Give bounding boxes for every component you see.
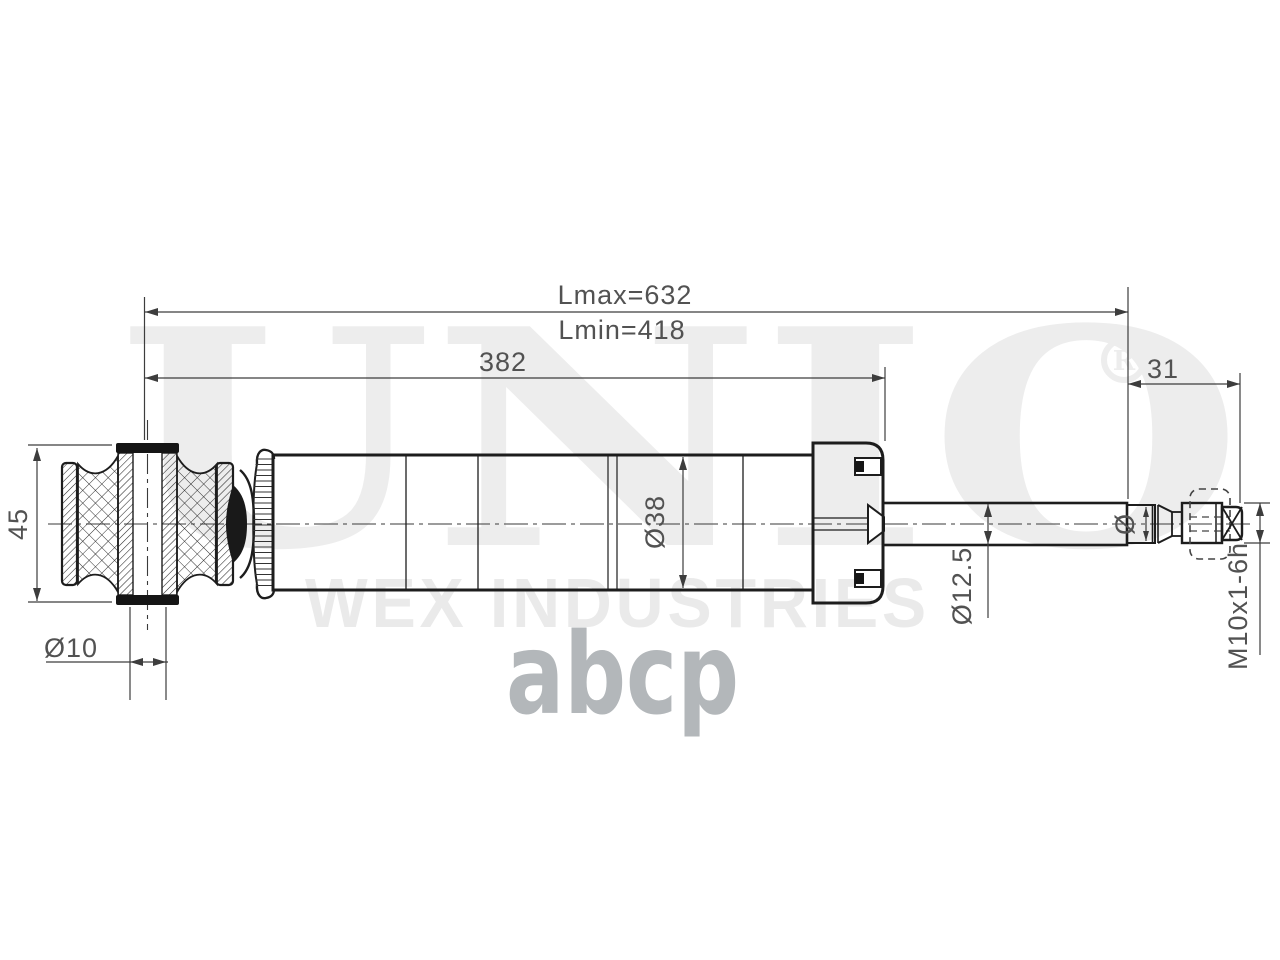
- registered-letter: R: [1113, 346, 1136, 377]
- dim-label-d38: Ø38: [640, 495, 670, 549]
- dim-label-stem-diameter: Ø: [1110, 513, 1140, 535]
- shock-absorber-drawing: UNIO R WEX INDUSTRIES abcp: [0, 0, 1280, 960]
- dim-label-lmin: Lmin=418: [558, 315, 685, 345]
- dim-label-d125: Ø12.5: [947, 547, 977, 626]
- bushing-sleeve-top-flange: [116, 443, 179, 453]
- bushing-rubber-left: [78, 456, 118, 592]
- bushing-outer-ring-left: [62, 463, 77, 585]
- technical-drawing-canvas: UNIO R WEX INDUSTRIES abcp: [0, 0, 1280, 960]
- dim-label-45: 45: [3, 508, 33, 540]
- dim-label-31: 31: [1147, 354, 1179, 384]
- bushing-sleeve-wall-left: [118, 453, 133, 595]
- bushing-sleeve-wall-right: [162, 453, 177, 595]
- cap-clip-bottom-pin: [855, 573, 864, 584]
- dim-label-382: 382: [479, 347, 527, 377]
- bushing-sleeve-bottom-flange: [116, 595, 179, 605]
- dim-label-lmax: Lmax=632: [558, 280, 693, 310]
- dim-label-d10: Ø10: [44, 633, 98, 663]
- bushing-rubber-right: [177, 456, 217, 592]
- cap-clip-top-pin: [855, 461, 864, 472]
- dim-label-thread: M10x1-6h: [1223, 542, 1253, 670]
- marketplace-logo: abcp: [506, 610, 739, 740]
